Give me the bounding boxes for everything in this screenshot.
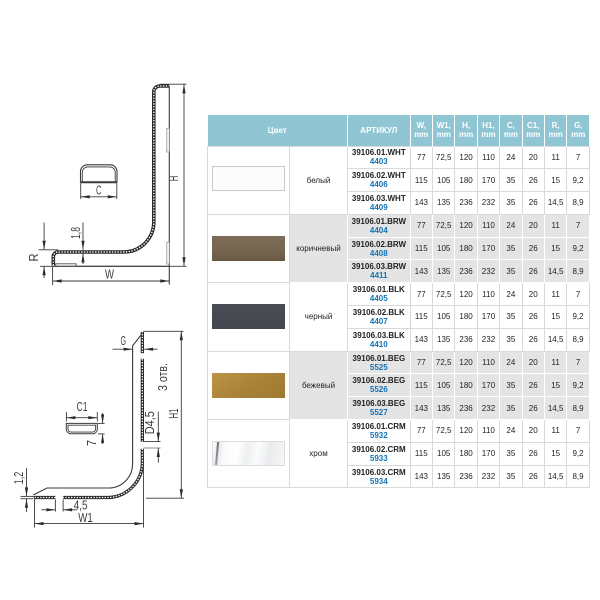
svg-text:D4,5: D4,5 xyxy=(142,411,157,434)
svg-text:7: 7 xyxy=(84,440,99,446)
svg-text:R: R xyxy=(26,254,41,262)
svg-text:W1: W1 xyxy=(78,510,93,525)
svg-text:G: G xyxy=(121,333,127,348)
svg-text:H1: H1 xyxy=(166,409,181,419)
svg-text:1,8: 1,8 xyxy=(68,227,83,239)
svg-text:3 отв.: 3 отв. xyxy=(155,363,170,391)
svg-text:H: H xyxy=(166,176,181,182)
svg-text:C: C xyxy=(96,183,102,198)
svg-text:W: W xyxy=(105,267,115,282)
svg-text:C1: C1 xyxy=(77,399,88,414)
svg-text:1,2: 1,2 xyxy=(11,472,26,485)
